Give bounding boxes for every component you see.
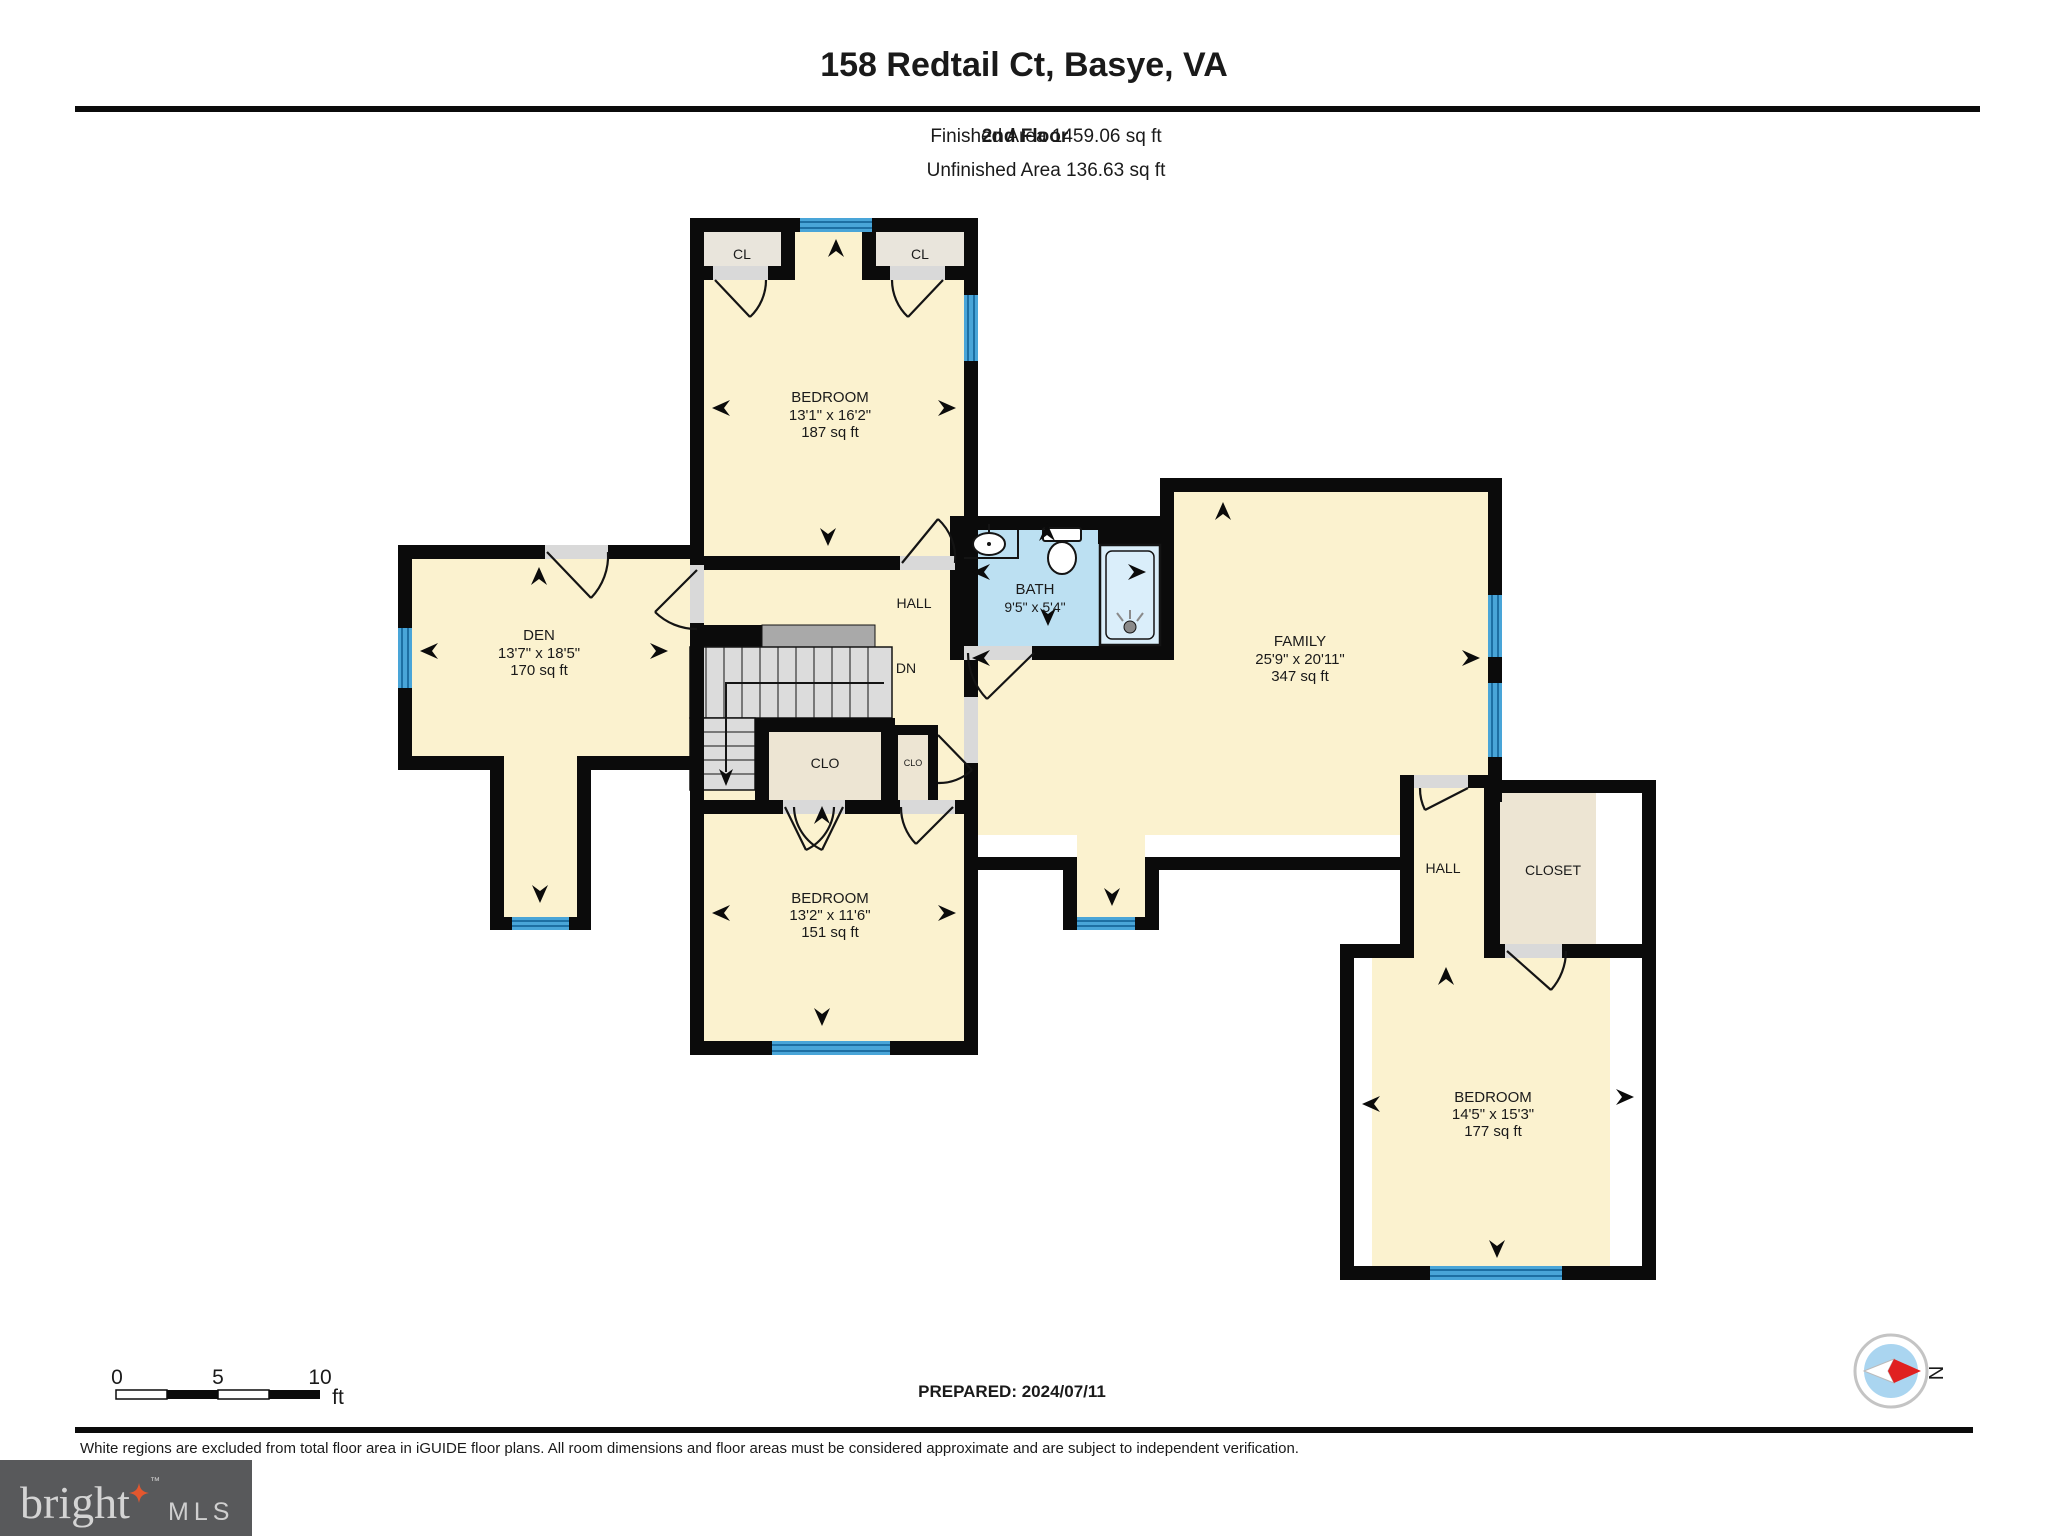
page-title: 158 Redtail Ct, Basye, VA — [820, 46, 1228, 84]
footer-divider — [75, 1427, 1973, 1433]
room-name: BEDROOM — [791, 389, 869, 406]
room-name: BEDROOM — [791, 890, 869, 907]
disclaimer-text: White regions are excluded from total fl… — [80, 1440, 1299, 1457]
room-dims: 13'2" x 11'6" — [789, 907, 870, 924]
brand-logo: bright ™ MLS — [0, 1460, 252, 1536]
room-dims: 13'7" x 18'5" — [498, 645, 580, 662]
footer: PREPARED: 2024/07/11 White regions are e… — [75, 1382, 1973, 1457]
hall-right-label: HALL — [1425, 860, 1460, 876]
room-dims: 14'5" x 15'3" — [1452, 1106, 1534, 1123]
brand-suffix: MLS — [168, 1498, 234, 1526]
compass-n-label: N — [1924, 1366, 1946, 1380]
floorplan-canvas: 158 Redtail Ct, Basye, VA 2nd Floor Fini… — [0, 0, 2048, 1536]
brand-tm: ™ — [150, 1476, 160, 1487]
room-area: 170 sq ft — [510, 662, 568, 679]
scale-unit: ft — [332, 1386, 344, 1409]
room-dims: 25'9" x 20'11" — [1255, 651, 1345, 668]
scale-bar: 0 5 10 ft — [111, 1366, 344, 1409]
room-area: 177 sq ft — [1464, 1123, 1522, 1140]
finished-area: Finished Area 1459.06 sq ft — [930, 126, 1162, 147]
room-name: BATH — [1016, 581, 1055, 598]
floorplan-page: { "header": { "title": "158 Redtail Ct, … — [0, 0, 2048, 1536]
toilet-bowl-icon — [1048, 542, 1076, 574]
scale-tick-10: 10 — [308, 1366, 331, 1389]
room-name: BEDROOM — [1454, 1089, 1532, 1106]
room-area: 151 sq ft — [801, 924, 859, 941]
scale-tick-5: 5 — [212, 1366, 224, 1389]
scale-tick-0: 0 — [111, 1366, 123, 1389]
room-name: FAMILY — [1274, 633, 1326, 650]
clo-large-label: CLO — [811, 755, 840, 771]
closet-left-label: CL — [733, 246, 751, 262]
compass-icon: N — [1855, 1335, 1946, 1407]
unfinished-area: Unfinished Area 136.63 sq ft — [927, 160, 1166, 181]
clo-small-label: CLO — [904, 758, 923, 768]
room-area: 347 sq ft — [1271, 668, 1329, 685]
header: 158 Redtail Ct, Basye, VA 2nd Floor Fini… — [75, 46, 1980, 181]
brand-name: bright — [20, 1477, 130, 1528]
room-dims: 9'5" x 5'4" — [1004, 599, 1065, 615]
room-area: 187 sq ft — [801, 424, 859, 441]
shower-drain-icon — [1124, 621, 1136, 633]
closet-right-label: CL — [911, 246, 929, 262]
room-bedroom-middle: BEDROOM 13'2" x 11'6" 151 sq ft — [789, 890, 870, 941]
hall-center-label: HALL — [896, 595, 931, 611]
closet-wing-label: CLOSET — [1525, 862, 1581, 878]
room-dims: 13'1" x 16'2" — [789, 407, 871, 424]
header-divider — [75, 106, 1980, 112]
room-name: DEN — [523, 627, 555, 644]
stairs-dn-label: DN — [896, 660, 916, 676]
room-fills — [412, 232, 1610, 1266]
prepared-date: PREPARED: 2024/07/11 — [918, 1382, 1106, 1401]
